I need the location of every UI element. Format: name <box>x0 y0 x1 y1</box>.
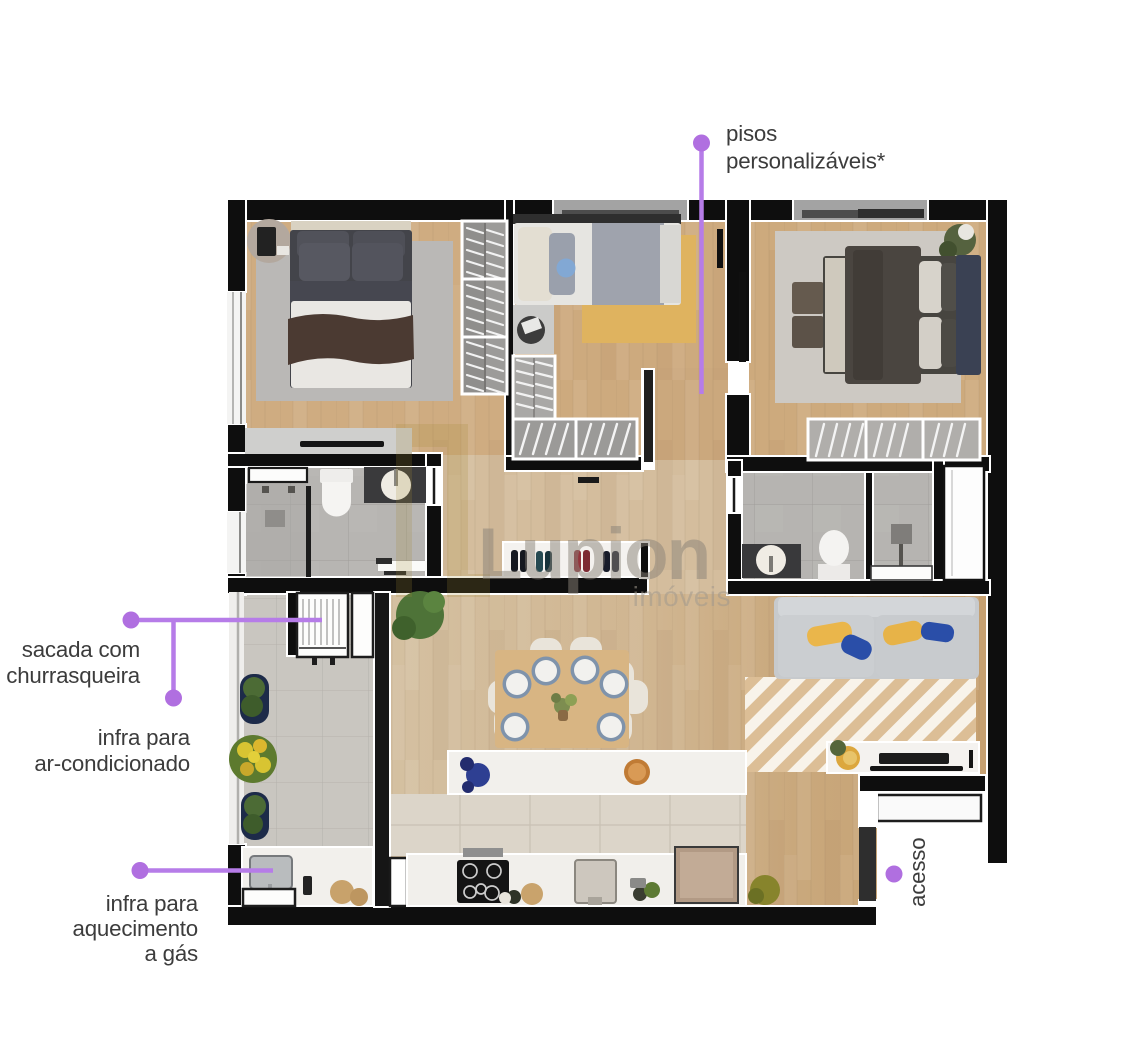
svg-text:aquecimento: aquecimento <box>73 916 198 941</box>
svg-text:imóveis: imóveis <box>633 581 731 612</box>
svg-text:ar-condicionado: ar-condicionado <box>34 751 190 776</box>
svg-text:infra para: infra para <box>98 725 191 750</box>
svg-text:personalizáveis*: personalizáveis* <box>726 149 886 174</box>
svg-text:a gás: a gás <box>144 941 198 966</box>
svg-text:sacada com: sacada com <box>22 637 140 662</box>
svg-text:infra para: infra para <box>106 891 199 916</box>
svg-text:churrasqueira: churrasqueira <box>6 663 141 688</box>
svg-text:acesso: acesso <box>905 838 930 907</box>
svg-text:pisos: pisos <box>726 121 777 146</box>
